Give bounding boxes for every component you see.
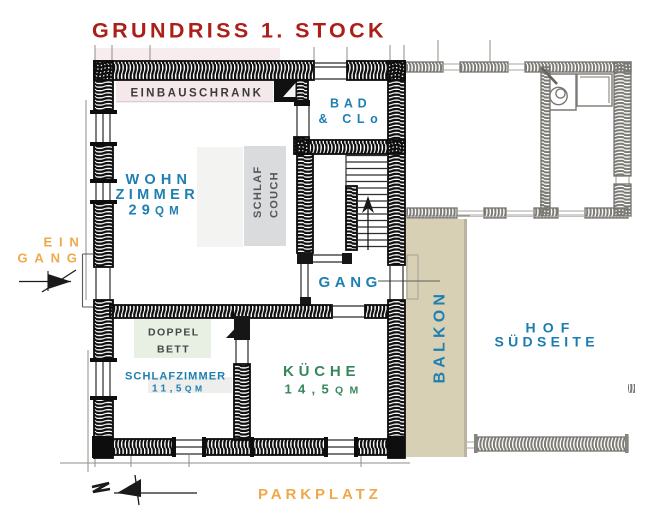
svg-text:SCHLAFZIMMER: SCHLAFZIMMER	[125, 371, 226, 383]
svg-text:BAD: BAD	[330, 97, 371, 111]
svg-text:SÜDSEITE: SÜDSEITE	[495, 334, 599, 350]
svg-text:WOHN: WOHN	[126, 172, 193, 188]
svg-text:14,5QM: 14,5QM	[285, 382, 365, 397]
svg-text:DOPPEL: DOPPEL	[148, 327, 200, 339]
svg-text:11,5QM: 11,5QM	[152, 384, 206, 395]
svg-text:29QM: 29QM	[129, 203, 184, 219]
svg-text:GRUNDRISS 1. STOCK: GRUNDRISS 1. STOCK	[92, 19, 387, 43]
svg-text:ZIMMER: ZIMMER	[116, 187, 200, 203]
svg-text:GANG: GANG	[18, 251, 84, 266]
svg-text:BALKON: BALKON	[432, 290, 449, 384]
svg-text:PARKPLATZ: PARKPLATZ	[258, 486, 382, 503]
svg-text:GANG: GANG	[319, 274, 382, 291]
svg-text:COUCH: COUCH	[269, 171, 281, 218]
svg-text:EINBAUSCHRANK: EINBAUSCHRANK	[131, 88, 264, 100]
svg-text:EIN: EIN	[44, 235, 86, 250]
svg-text:& CLo: & CLo	[319, 112, 384, 126]
svg-text:BETT: BETT	[157, 344, 190, 356]
svg-text:SCHLAF: SCHLAF	[252, 166, 264, 218]
svg-text:KÜCHE: KÜCHE	[283, 363, 360, 380]
